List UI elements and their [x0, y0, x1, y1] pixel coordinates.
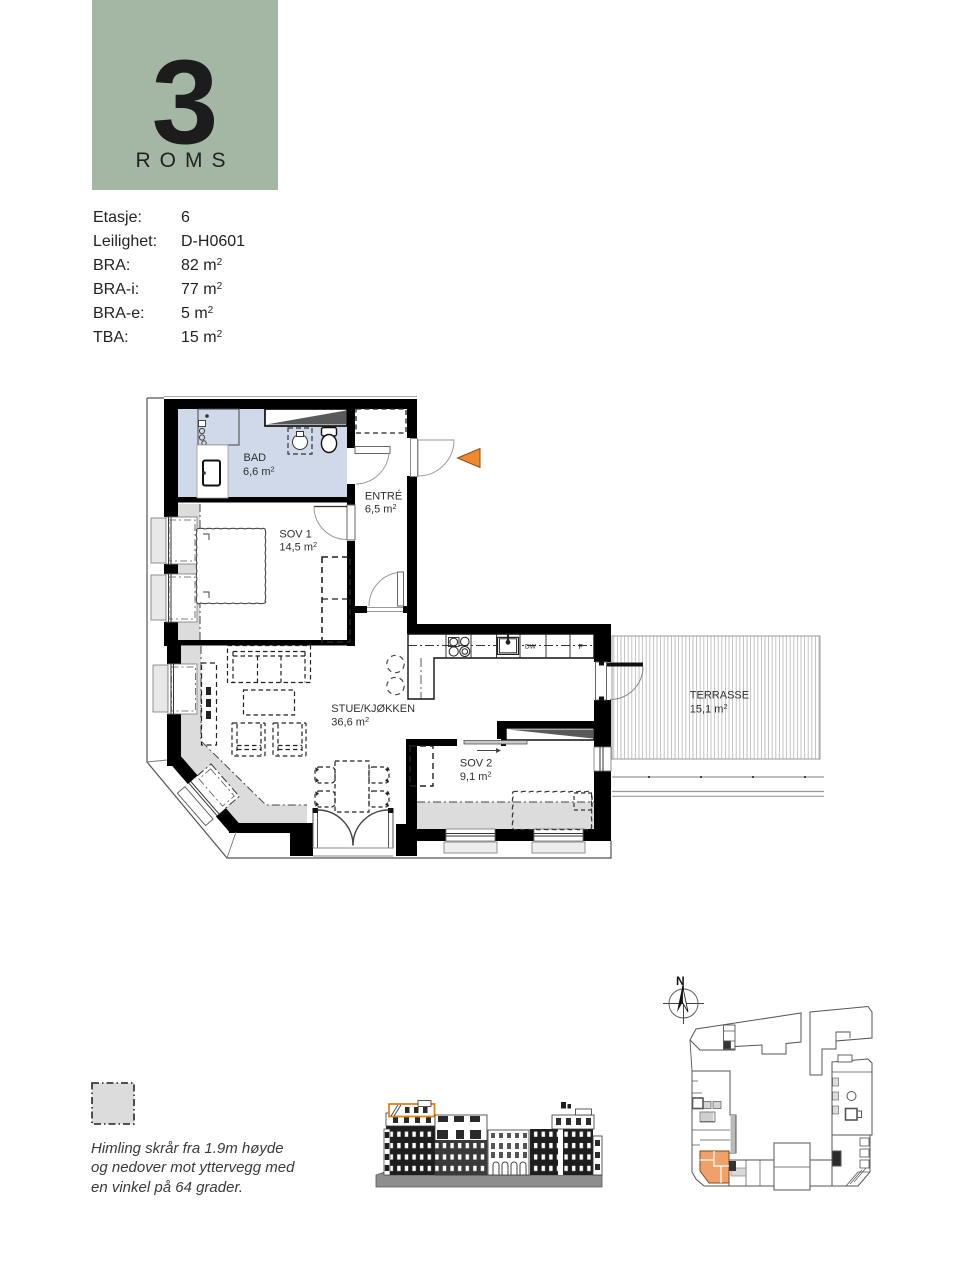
svg-text:6,6 m2: 6,6 m2: [243, 465, 275, 479]
svg-text:9,1 m2: 9,1 m2: [460, 770, 492, 784]
svg-text:6,5 m2: 6,5 m2: [365, 502, 397, 516]
svg-text:SOV 2: SOV 2: [460, 758, 492, 770]
svg-text:F: F: [579, 644, 583, 651]
svg-text:BAD: BAD: [244, 452, 267, 464]
svg-text:36,6 m2: 36,6 m2: [331, 715, 369, 729]
svg-text:STUE/KJØKKEN: STUE/KJØKKEN: [331, 703, 415, 715]
svg-text:ENTRÉ: ENTRÉ: [365, 489, 402, 502]
svg-text:DW: DW: [525, 644, 537, 651]
svg-text:TERRASSE: TERRASSE: [690, 690, 749, 702]
svg-text:15,1 m2: 15,1 m2: [690, 702, 728, 716]
svg-text:14,5 m2: 14,5 m2: [279, 540, 317, 554]
svg-text:SOV 1: SOV 1: [279, 529, 311, 541]
